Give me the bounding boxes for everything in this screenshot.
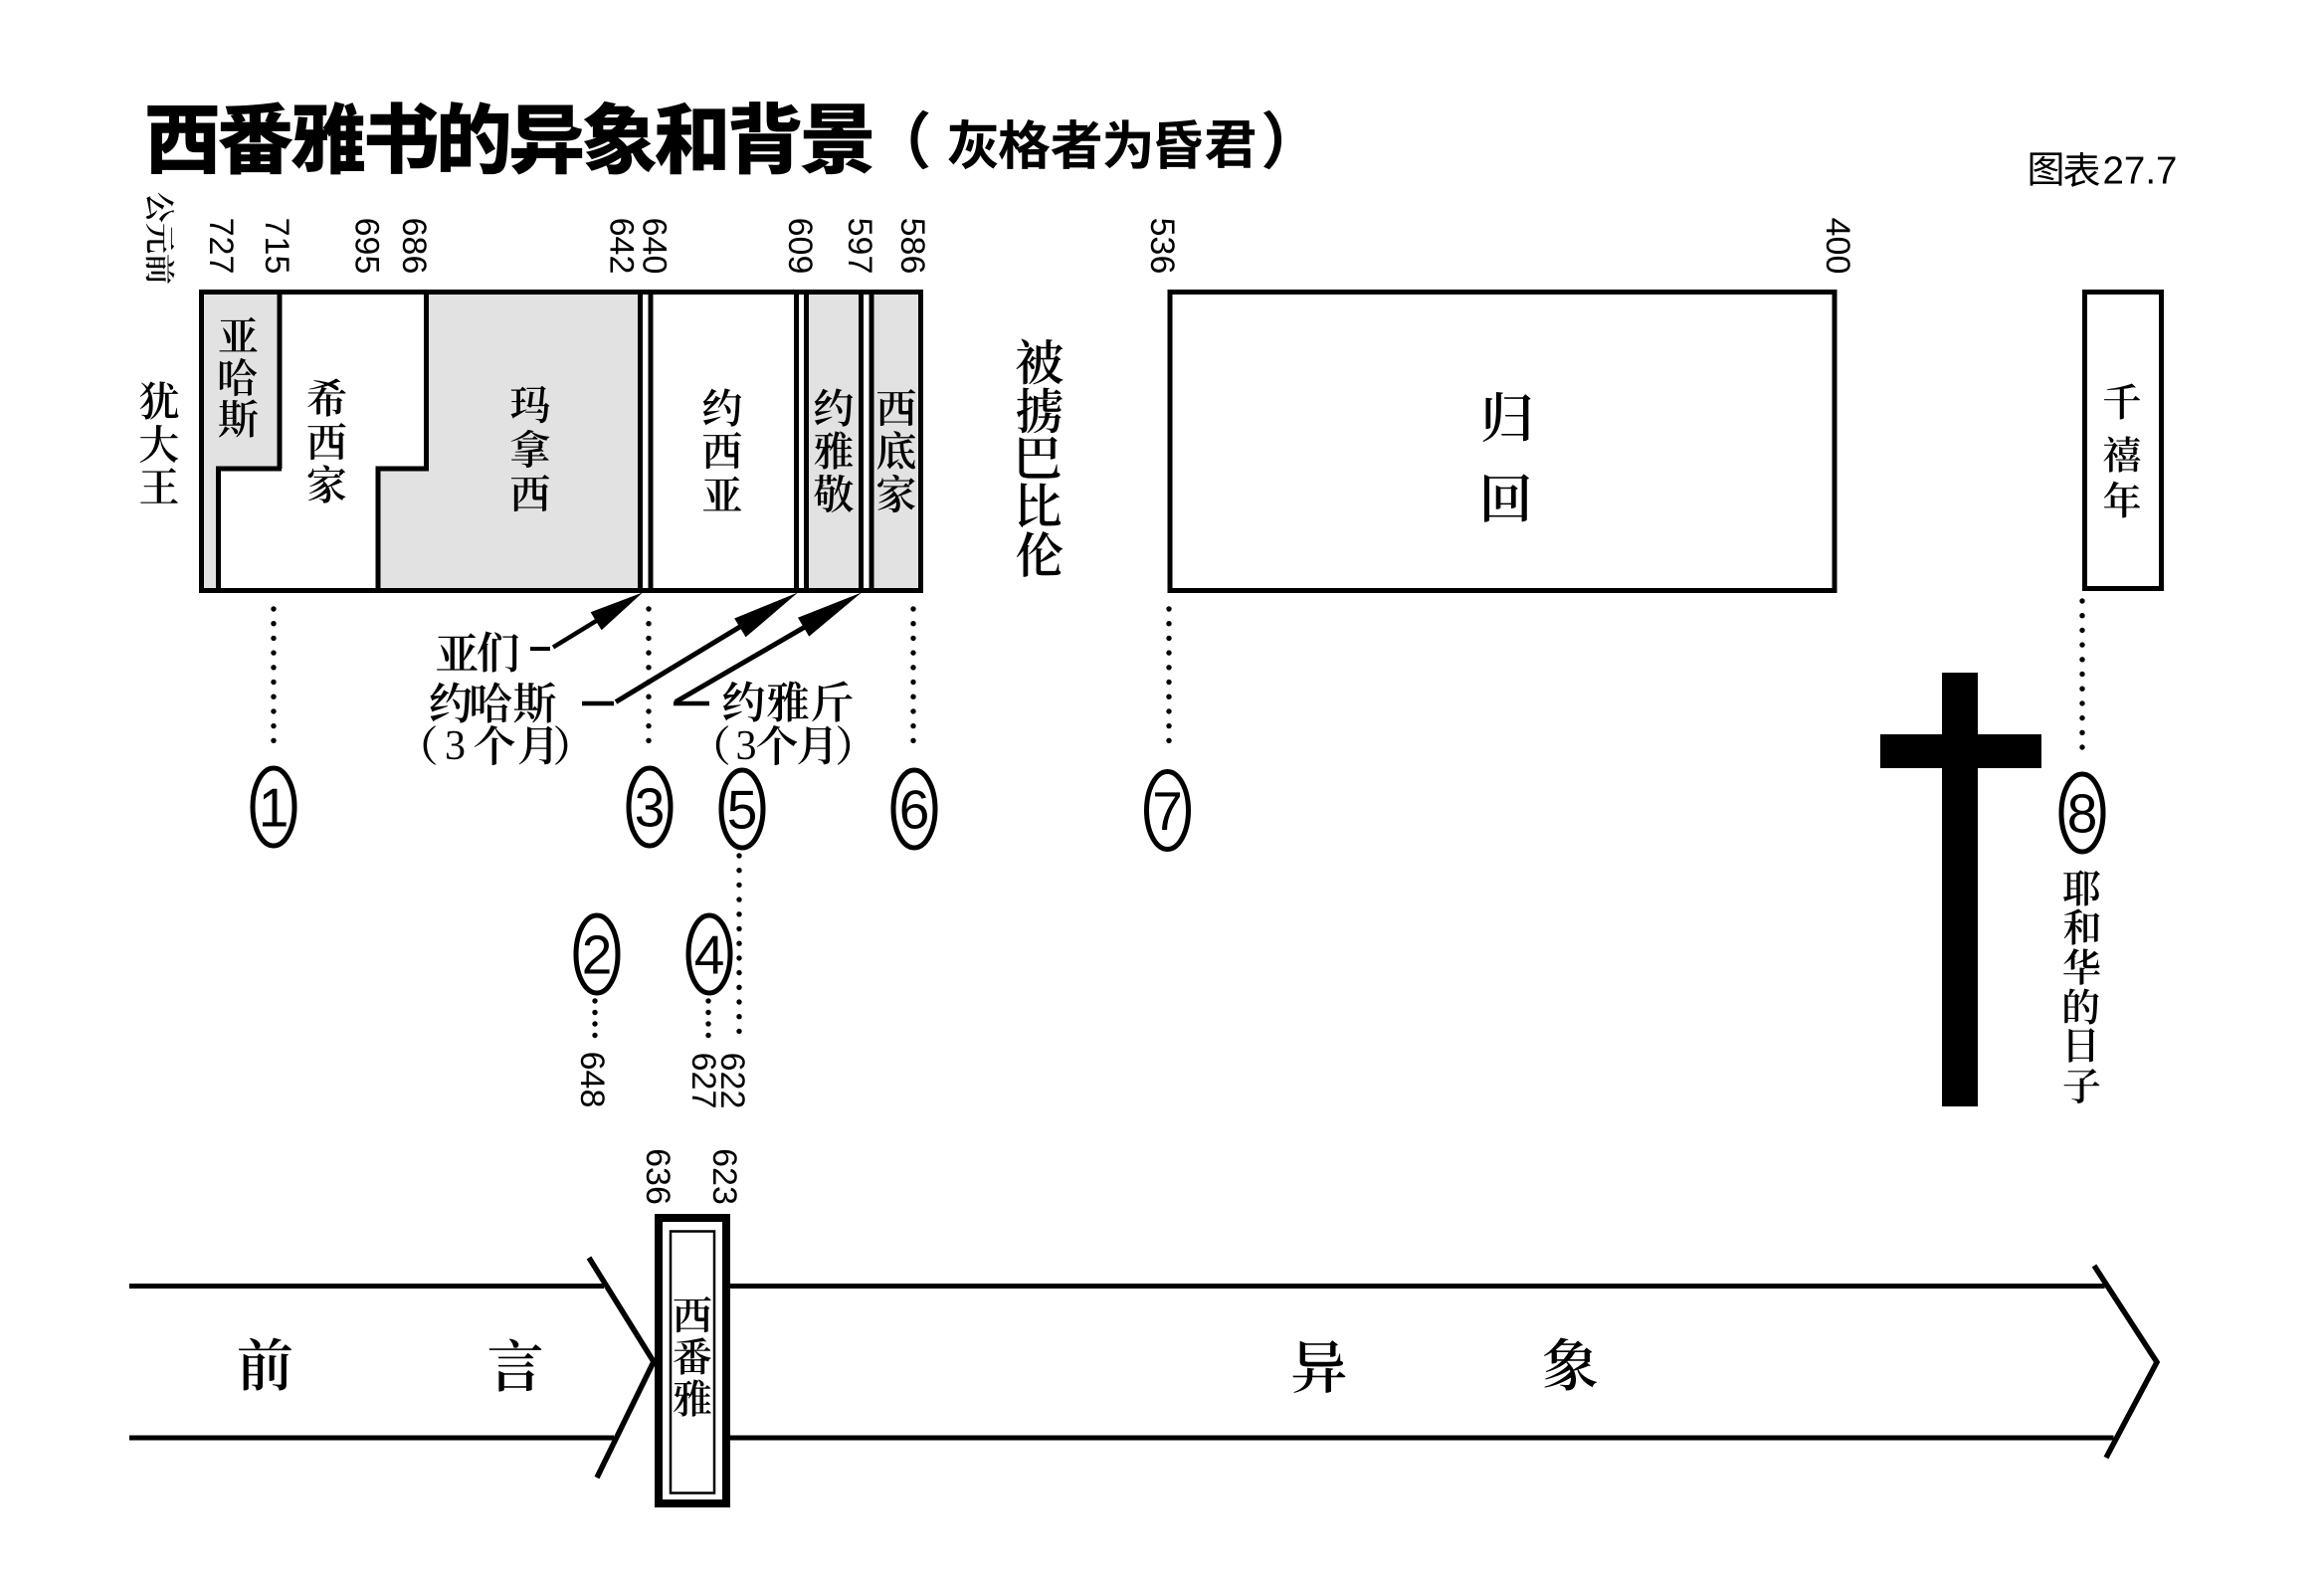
svg-text:536: 536 <box>1143 218 1181 275</box>
svg-text:1: 1 <box>259 777 290 839</box>
svg-text:686: 686 <box>395 218 433 275</box>
svg-text:2: 2 <box>582 924 613 986</box>
svg-text:622: 622 <box>713 1053 751 1109</box>
svg-text:597: 597 <box>841 218 878 275</box>
svg-text:7: 7 <box>1152 780 1183 842</box>
svg-text:5: 5 <box>727 779 758 841</box>
svg-text:642: 642 <box>602 218 640 275</box>
svg-text:3: 3 <box>445 723 466 769</box>
svg-text:609: 609 <box>781 218 819 275</box>
svg-text:4: 4 <box>694 924 725 986</box>
svg-text:3: 3 <box>736 723 757 769</box>
svg-text:648: 648 <box>573 1052 611 1108</box>
svg-text:586: 586 <box>893 218 931 275</box>
svg-text:623: 623 <box>705 1148 743 1205</box>
svg-text:400: 400 <box>1819 218 1856 275</box>
svg-text:27.7: 27.7 <box>2103 150 2178 193</box>
svg-text:6: 6 <box>899 779 930 841</box>
svg-text:715: 715 <box>258 218 295 275</box>
svg-text:636: 636 <box>639 1148 677 1205</box>
svg-text:695: 695 <box>347 218 385 275</box>
svg-text:3: 3 <box>635 777 666 839</box>
svg-text:727: 727 <box>202 218 240 275</box>
svg-text:640: 640 <box>635 218 673 275</box>
svg-text:8: 8 <box>2067 783 2098 845</box>
